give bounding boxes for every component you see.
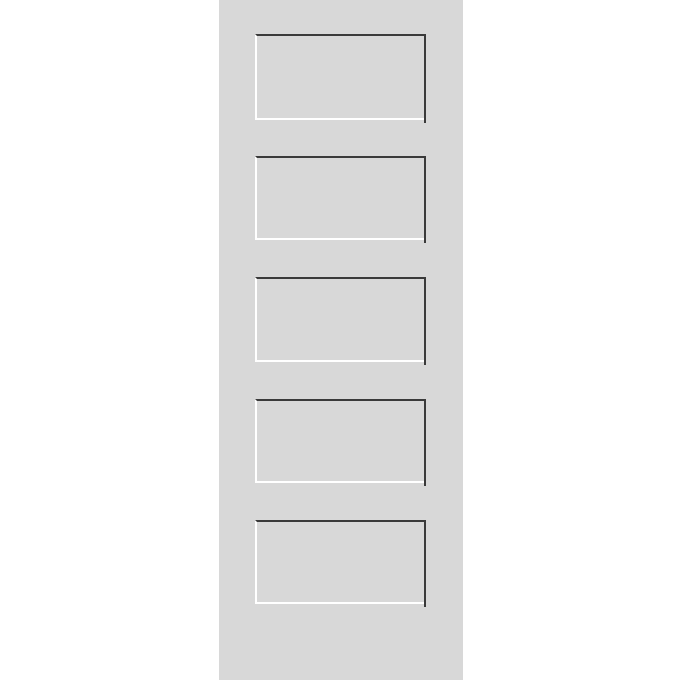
door-panel-2 — [255, 156, 426, 240]
door-panel-1 — [255, 34, 426, 120]
product-image-canvas — [0, 0, 680, 680]
door-slab — [219, 0, 463, 680]
door-panel-4 — [255, 399, 426, 483]
door-panel-3 — [255, 277, 426, 362]
door-panel-5 — [255, 520, 426, 604]
